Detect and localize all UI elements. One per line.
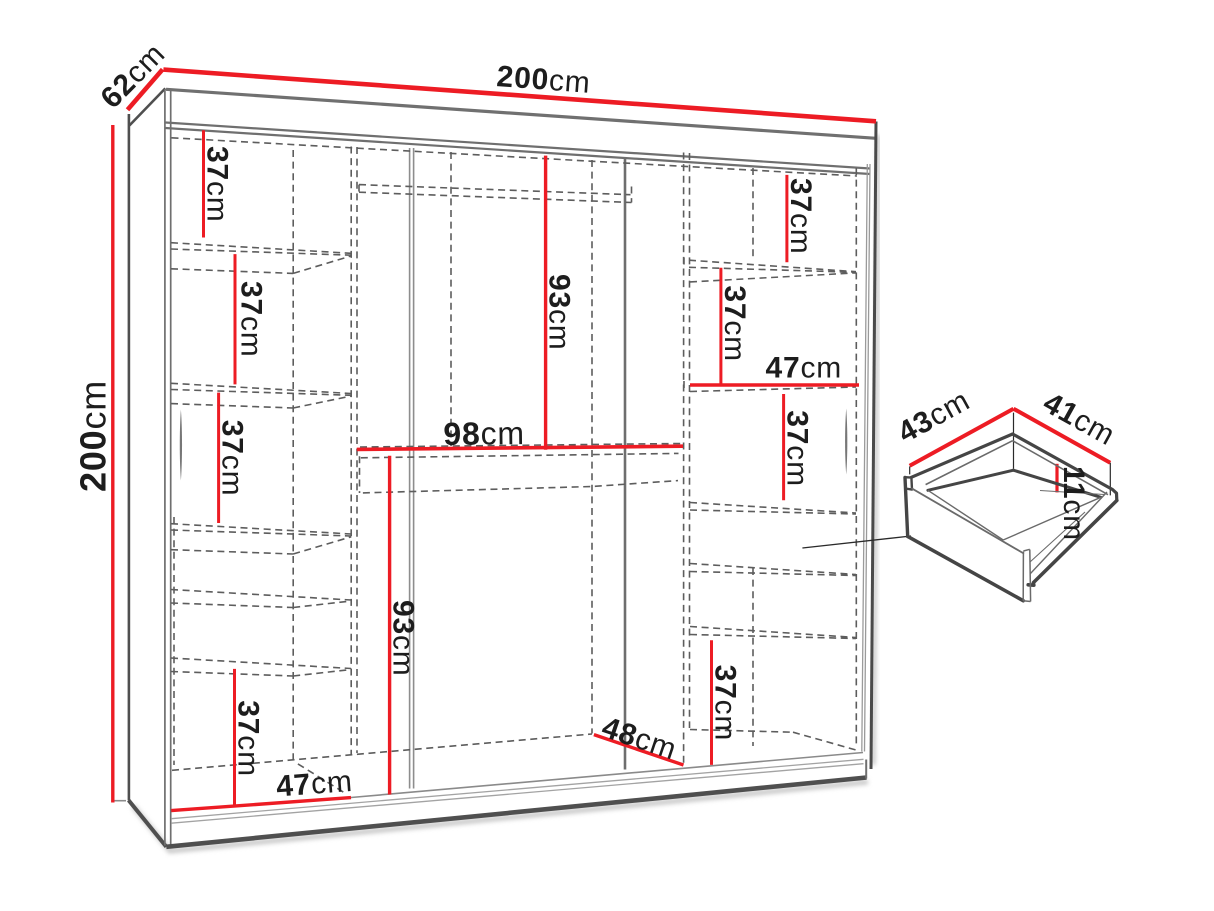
svg-text:37cm: 37cm: [232, 700, 265, 777]
svg-text:93cm: 93cm: [387, 600, 420, 677]
svg-text:37cm: 37cm: [201, 146, 234, 223]
svg-text:93cm: 93cm: [543, 274, 576, 351]
svg-text:98cm: 98cm: [443, 415, 525, 452]
svg-text:37cm: 37cm: [781, 410, 814, 487]
svg-text:47cm: 47cm: [766, 352, 843, 385]
svg-text:37cm: 37cm: [784, 178, 817, 255]
svg-text:37cm: 37cm: [235, 281, 268, 358]
svg-text:37cm: 37cm: [718, 285, 751, 362]
svg-text:37cm: 37cm: [709, 665, 742, 742]
svg-text:47cm: 47cm: [275, 765, 354, 804]
svg-text:37cm: 37cm: [216, 420, 249, 497]
svg-text:200cm: 200cm: [495, 60, 591, 100]
svg-text:200cm: 200cm: [73, 380, 114, 492]
svg-text:11cm: 11cm: [1057, 466, 1090, 541]
